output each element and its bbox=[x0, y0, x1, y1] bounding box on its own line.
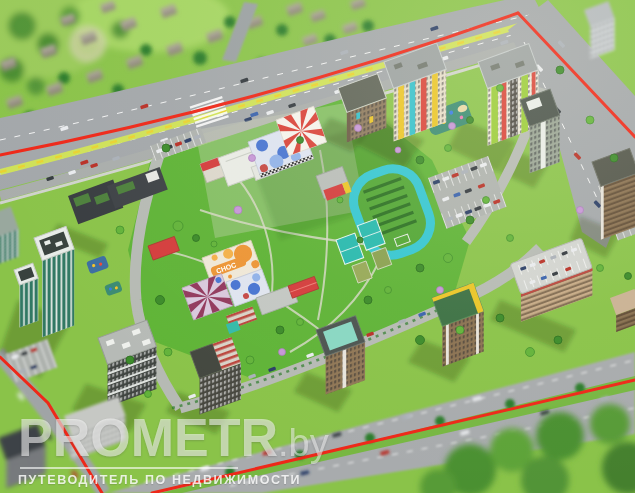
aerial-render: CHOC bbox=[0, 0, 635, 493]
scene-svg: CHOC bbox=[0, 0, 635, 493]
